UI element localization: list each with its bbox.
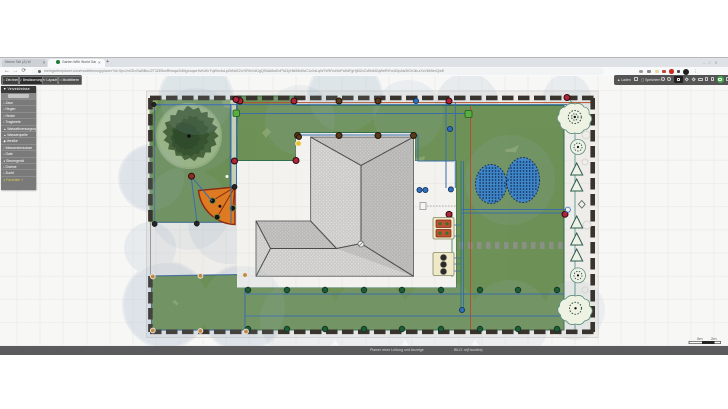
svg-text:2m: 2m (711, 336, 717, 341)
svg-text:0m: 0m (697, 336, 703, 341)
